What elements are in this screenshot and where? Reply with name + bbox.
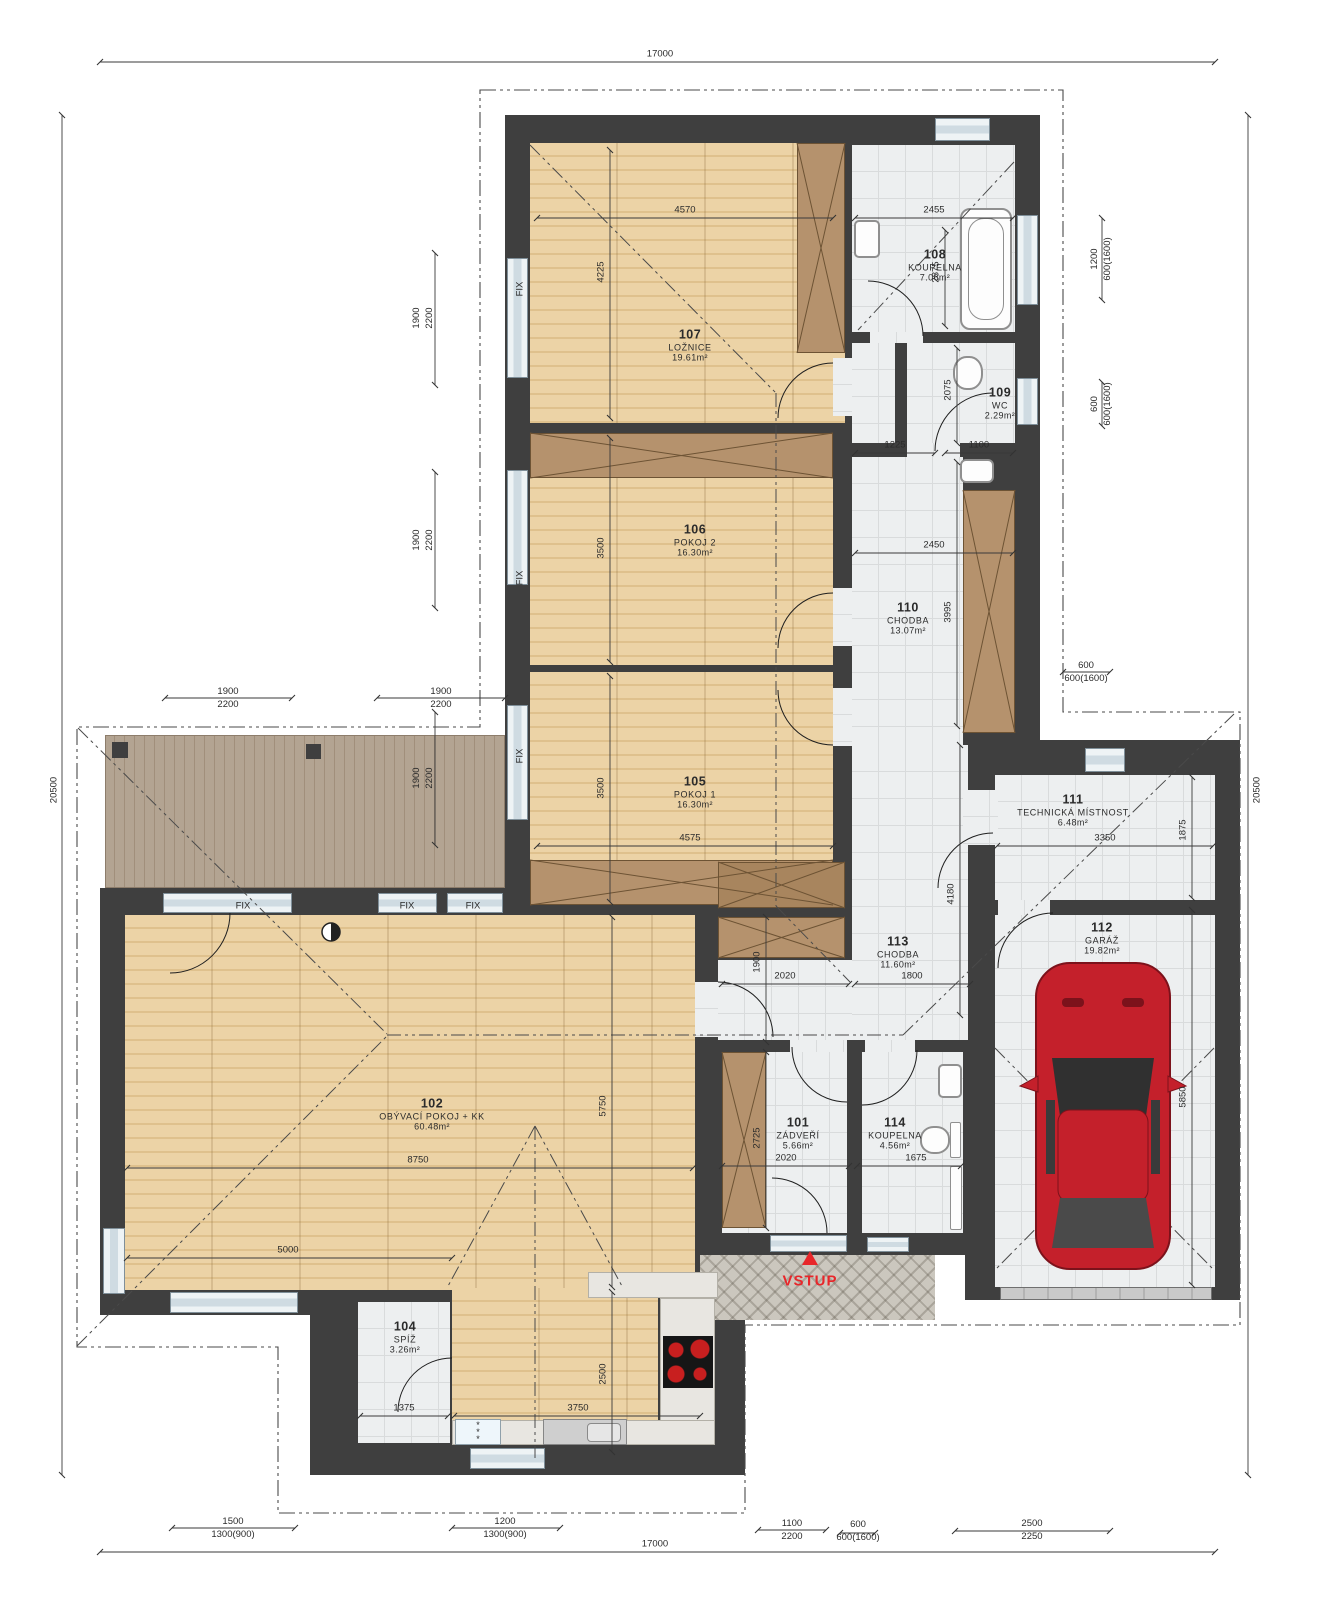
- room-name: POKOJ 1: [674, 790, 716, 800]
- wardrobe-113-a: [718, 862, 845, 908]
- fix-window-label: FIX: [400, 901, 415, 911]
- bathtub-inner: [968, 218, 1004, 320]
- door-opening: [998, 900, 1050, 915]
- room-number: 104: [390, 1320, 420, 1334]
- room-area: 19.82m²: [1084, 946, 1120, 956]
- dim-text: 1800: [901, 971, 922, 981]
- dim-value: 1900: [217, 687, 238, 697]
- window-terrace-door[interactable]: [163, 893, 292, 913]
- dim-text: 2455: [923, 205, 944, 215]
- dim-text: 4180: [946, 883, 956, 904]
- dim-text: 3500: [596, 537, 606, 558]
- window-111: [1085, 748, 1125, 772]
- dim-text: 1100: [969, 440, 989, 450]
- floor-plan: * * *: [0, 0, 1336, 1600]
- dim-text: 2875: [931, 261, 941, 282]
- toilet-109: [953, 356, 983, 390]
- door-opening: [870, 332, 923, 343]
- dim-text: 3350: [1094, 833, 1115, 843]
- fix-window-label: FIX: [466, 901, 481, 911]
- room-name: GARÁŽ: [1084, 936, 1120, 946]
- room-area: 4.56m²: [868, 1141, 922, 1151]
- dim-window-stacked: 1500 1300(900): [211, 1517, 254, 1539]
- room-label-111: 111 TECHNICKÁ MÍSTNOST 6.48m²: [1017, 793, 1129, 828]
- dim-value: 1900: [412, 307, 422, 328]
- dim-text: 2020: [775, 1153, 796, 1163]
- window-living-west: [103, 1228, 125, 1294]
- dim-text: 3995: [943, 601, 953, 622]
- dim-value: 600: [1090, 396, 1100, 412]
- room-number: 105: [674, 775, 716, 789]
- door-opening: [695, 982, 718, 1037]
- room-number: 106: [674, 523, 716, 537]
- dim-window-stacked: 600 600(1600): [1090, 382, 1112, 425]
- dim-value: 1300(900): [483, 1530, 526, 1540]
- room-label-105: 105 POKOJ 1 16.30m²: [674, 775, 716, 810]
- dim-window-stacked: 1100 2200: [781, 1519, 802, 1541]
- room-number: 112: [1084, 921, 1120, 935]
- room-label-106: 106 POKOJ 2 16.30m²: [674, 523, 716, 558]
- room-area: 6.48m²: [1017, 818, 1129, 828]
- room-name: LOŽNICE: [668, 343, 711, 353]
- terrace-post: [112, 742, 128, 758]
- room-number: 111: [1017, 793, 1129, 807]
- room-number: 114: [868, 1116, 922, 1130]
- dim-value: 600(1600): [1103, 237, 1113, 280]
- garage-door[interactable]: [1000, 1287, 1212, 1300]
- room-number: 101: [776, 1116, 819, 1130]
- dim-window-stacked: 1200 600(1600): [1090, 237, 1112, 280]
- window-kitchen: [470, 1448, 545, 1469]
- wardrobe-106: [530, 433, 833, 478]
- room-name: CHODBA: [887, 616, 929, 626]
- kitchen-sink: [543, 1419, 627, 1445]
- dim-value: 2200: [425, 767, 435, 788]
- washbasin-114: [938, 1064, 962, 1098]
- kitchen-counter-top: [588, 1272, 718, 1298]
- cooktop: [663, 1336, 713, 1388]
- wardrobe-107: [797, 143, 845, 353]
- wall-wc-partition: [895, 343, 907, 443]
- dim-text: 1375: [393, 1403, 414, 1413]
- fridge-symbol: * * *: [474, 1422, 483, 1443]
- shower-column-114: [950, 1166, 962, 1230]
- dim-value: 1900: [412, 529, 422, 550]
- dim-value: 600(1600): [1064, 674, 1107, 684]
- dim-value: 1200: [1090, 248, 1100, 269]
- door-opening: [865, 1040, 915, 1052]
- dim-window-stacked: 1900 2200: [412, 529, 434, 550]
- dim-value: 2200: [217, 700, 238, 710]
- fridge: * * *: [455, 1419, 501, 1445]
- room-area: 2.29m²: [985, 411, 1015, 421]
- dim-text: 1875: [1178, 819, 1188, 840]
- dim-overall-left: 20500: [49, 777, 59, 803]
- room-area: 16.30m²: [674, 800, 716, 810]
- room-name: TECHNICKÁ MÍSTNOST: [1017, 808, 1129, 818]
- room-label-104: 104 SPÍŽ 3.26m²: [390, 1320, 420, 1355]
- window-109: [1017, 378, 1038, 425]
- room-area: 11.60m²: [877, 960, 919, 970]
- door-opening: [907, 443, 960, 457]
- dim-text: 2020: [774, 971, 795, 981]
- door-opening: [833, 358, 852, 416]
- dim-value: 1900: [430, 687, 451, 697]
- dim-value: 2200: [430, 700, 451, 710]
- dim-text: 3500: [596, 777, 606, 798]
- dim-text: 1225: [884, 440, 905, 450]
- terrace-post: [306, 744, 321, 759]
- dim-text: 2725: [752, 1127, 762, 1148]
- dim-text: 5750: [598, 1095, 608, 1116]
- dim-value: 600: [1078, 661, 1094, 671]
- room-area: 19.61m²: [668, 353, 711, 363]
- dim-text: 2450: [923, 540, 944, 550]
- dim-window-stacked: 1900 2200: [217, 687, 238, 709]
- wardrobe-110: [963, 490, 1015, 733]
- door-opening: [833, 588, 852, 646]
- dim-text: 1675: [905, 1153, 926, 1163]
- fix-window-label: FIX: [236, 901, 251, 911]
- room-label-109: 109 WC 2.29m²: [985, 386, 1015, 421]
- room-number: 109: [985, 386, 1015, 400]
- room-label-112: 112 GARÁŽ 19.82m²: [1084, 921, 1120, 956]
- dim-text: 4575: [679, 833, 700, 843]
- window-106-fix: [507, 470, 528, 585]
- room-number: 108: [908, 248, 962, 262]
- room-number: 110: [887, 601, 929, 615]
- entry-label: VSTUP: [782, 1274, 837, 1289]
- dim-text: 2500: [598, 1363, 608, 1384]
- fix-window-label: FIX: [515, 282, 525, 297]
- dim-overall-right: 20500: [1252, 777, 1262, 803]
- dim-text: 2075: [943, 379, 953, 400]
- room-name: WC: [985, 401, 1015, 411]
- entry-arrow-icon: [802, 1251, 818, 1265]
- room-label-102: 102 OBÝVACÍ POKOJ + KK 60.48m²: [379, 1097, 484, 1132]
- dim-value: 1900: [412, 767, 422, 788]
- dim-value: 1500: [222, 1517, 243, 1527]
- room-name: ZÁDVEŘÍ: [776, 1131, 819, 1141]
- window-114: [867, 1237, 909, 1252]
- room-name: CHODBA: [877, 950, 919, 960]
- dim-window-stacked: 1900 2200: [430, 687, 451, 709]
- dim-text: 5850: [1178, 1086, 1188, 1107]
- room-area: 16.30m²: [674, 548, 716, 558]
- dim-text: 1900: [752, 951, 762, 972]
- dim-window-stacked: 1200 1300(900): [483, 1517, 526, 1539]
- terrace-deck: [105, 735, 505, 888]
- door-opening: [833, 688, 852, 746]
- dim-text: 4570: [674, 205, 695, 215]
- dim-value: 2200: [425, 529, 435, 550]
- dim-window-stacked: 2500 2250: [1021, 1519, 1042, 1541]
- toilet-114: [920, 1126, 950, 1154]
- dim-window-stacked: 1900 2200: [412, 307, 434, 328]
- dim-value: 2200: [781, 1532, 802, 1542]
- window-108: [935, 118, 990, 141]
- door-opening: [790, 1040, 847, 1052]
- room-label-107: 107 LOŽNICE 19.61m²: [668, 328, 711, 363]
- room-number: 107: [668, 328, 711, 342]
- room-label-101: 101 ZÁDVEŘÍ 5.66m²: [776, 1116, 819, 1151]
- dim-value: 2200: [425, 307, 435, 328]
- dim-text: 3750: [567, 1403, 588, 1413]
- room-area: 60.48m²: [379, 1122, 484, 1132]
- room-number: 113: [877, 935, 919, 949]
- room-name: KOUPELNA: [868, 1131, 922, 1141]
- window-107-fix: [507, 258, 528, 378]
- washbasin-110: [960, 459, 994, 483]
- dim-text: 4225: [596, 261, 606, 282]
- dim-window-stacked: 600 600(1600): [1064, 661, 1107, 683]
- dim-value: 1100: [782, 1519, 802, 1529]
- fix-window-label: FIX: [515, 749, 525, 764]
- window-living-south: [170, 1292, 298, 1313]
- room-number: 102: [379, 1097, 484, 1111]
- dim-text: 5000: [277, 1245, 298, 1255]
- room-area: 5.66m²: [776, 1141, 819, 1151]
- room-label-114: 114 KOUPELNA 4.56m²: [868, 1116, 922, 1151]
- dim-overall-bottom: 17000: [642, 1539, 668, 1549]
- window-108-east: [1017, 215, 1038, 305]
- room-area: 13.07m²: [887, 626, 929, 636]
- dim-value: 2500: [1021, 1519, 1042, 1529]
- fix-window-label: FIX: [515, 571, 525, 586]
- room-name: SPÍŽ: [390, 1335, 420, 1345]
- room-label-110: 110 CHODBA 13.07m²: [887, 601, 929, 636]
- room-label-113: 113 CHODBA 11.60m²: [877, 935, 919, 970]
- dim-value: 600(1600): [1103, 382, 1113, 425]
- dim-window-stacked: 600 600(1600): [836, 1520, 879, 1542]
- dim-value: 2250: [1021, 1532, 1042, 1542]
- entry-door[interactable]: [770, 1235, 847, 1252]
- door-opening: [963, 790, 998, 845]
- room-name: POKOJ 2: [674, 538, 716, 548]
- dim-window-stacked: 1900 2200: [412, 767, 434, 788]
- dim-overall-top: 17000: [647, 49, 673, 59]
- dim-text: 8750: [407, 1155, 428, 1165]
- wardrobe-113-b: [718, 917, 845, 958]
- dim-value: 1300(900): [211, 1530, 254, 1540]
- room-area: 3.26m²: [390, 1345, 420, 1355]
- room-name: OBÝVACÍ POKOJ + KK: [379, 1112, 484, 1122]
- dim-value: 1200: [494, 1517, 515, 1527]
- dim-value: 600: [850, 1520, 866, 1530]
- washbasin-108: [854, 220, 880, 258]
- toilet-tank-114: [950, 1122, 961, 1158]
- dim-value: 600(1600): [836, 1533, 879, 1543]
